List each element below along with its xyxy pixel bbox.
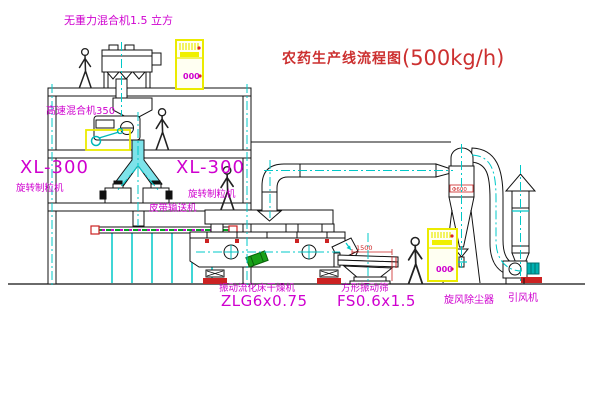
cabinet-right-display: 000 [436,265,453,274]
person-ground-floor [409,238,423,284]
person-second-floor [156,109,168,150]
control-cabinet-right: 000 [428,229,457,281]
title-chinese: 农药生产线流程图 [282,51,402,67]
title-capacity: (500kg/h) [402,46,504,70]
cabinet-top-display: 000 [183,72,200,81]
label-granulator-mid-name: 旋转制粒机 [188,190,236,200]
label-sieve-model: FS0.6x1.5 [337,294,416,309]
label-granulator-left-name: 旋转制粒机 [16,184,64,194]
page-title: 农药生产线流程图(500kg/h) [282,46,504,70]
granulator-left-machine [100,181,131,203]
sieve-width-dim-text: 1500 [356,244,373,252]
person-top-floor [80,49,92,88]
granulator-right-machine [143,181,172,203]
label-granulator-left-model: XL-300 [20,159,89,177]
control-cabinet-top: 000 [176,40,203,89]
label-cyclone: 旋风除尘器 [444,296,494,306]
label-high-speed-mixer: 高速混合机350 [46,107,115,117]
label-gravity-mixer: 无重力混合机1.5 立方 [64,15,173,26]
intermediate-hopper [113,98,152,118]
label-dryer-model: ZLG6x0.75 [221,294,308,309]
flow-diagram-canvas: Φ600 [0,0,600,403]
cyclone-size-mark: Φ600 [452,187,467,193]
label-fan: 引风机 [508,294,538,304]
label-granulator-mid-model: XL-300 [176,159,245,177]
label-belt-conveyor: 皮带输送机 [149,204,197,214]
induced-draft-fan [503,261,542,284]
